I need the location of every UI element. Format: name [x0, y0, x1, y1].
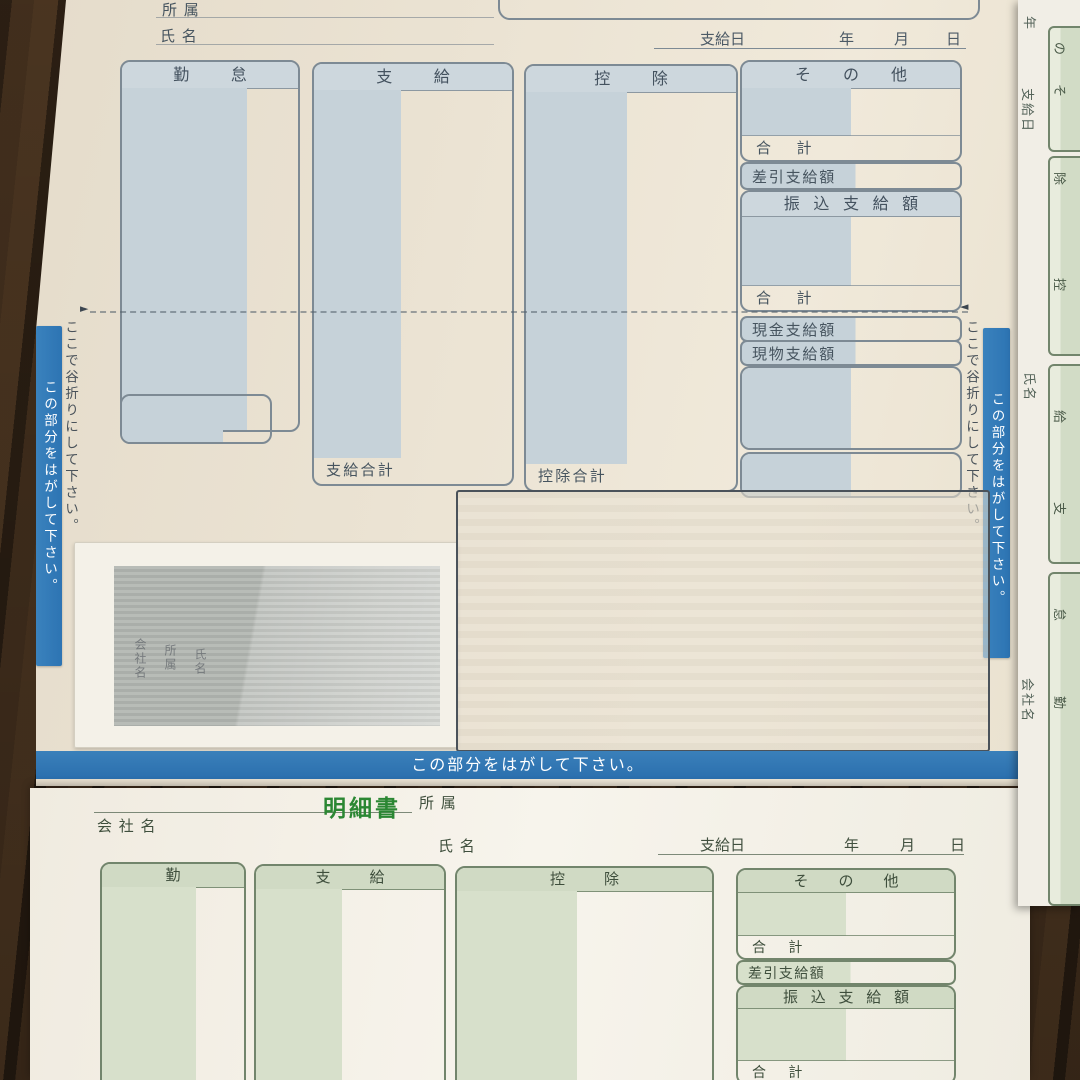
side-char-so: そ [1051, 84, 1070, 97]
deduction-body-bottom [457, 891, 712, 1080]
memo-box [456, 490, 990, 752]
pay-date-line-bottom: 支給日 年 月 日 [658, 832, 964, 855]
cash-payment-row: 現金支給額 [740, 316, 962, 342]
net-payment-row-bottom: 差引支給額 [736, 960, 956, 985]
pay-date-line: 支給日 年 月 日 [654, 26, 966, 49]
side-char-kyu: 給 [1051, 410, 1070, 423]
side-year-label: 年 [1021, 16, 1040, 31]
desk-photo-scene: 所属 氏名 支給日 年 月 日 勤怠 支給 支給合計 [0, 0, 1080, 1080]
deduction-total-label: 控除合計 [538, 465, 607, 486]
transfer-payment-header-bottom: 振込支給額 [738, 987, 954, 1009]
affiliation-label-bottom: 所属 [419, 792, 463, 813]
attendance-column-bottom: 勤怠 [100, 862, 246, 1080]
payment-body: 支給合計 [314, 90, 512, 484]
blank-box-large [740, 366, 962, 450]
attendance-shading-bottom [102, 887, 196, 1080]
inkind-payment-row: 現物支給額 [740, 340, 962, 366]
payslip-sheet-top: 所属 氏名 支給日 年 月 日 勤怠 支給 支給合計 [36, 0, 1020, 786]
other-box: その他 合計 [740, 60, 962, 162]
deduction-header-bottom: 控除 [457, 868, 712, 892]
deduction-body: 控除合計 [526, 92, 736, 490]
window-name-label: 氏名 [192, 648, 209, 676]
peel-strip-left: この部分をはがして下さい。 [36, 326, 62, 666]
attendance-sub-box [120, 394, 272, 444]
payment-item-shading [314, 90, 401, 458]
side-char-jo: 除 [1051, 172, 1070, 185]
pay-date-label: 支給日 [700, 28, 745, 49]
transfer-payment-header: 振込支給額 [742, 192, 960, 217]
statement-sheet-bottom: 会社名 明細書 所属 氏名 支給日 年 月 日 勤怠 支給 控除 [30, 788, 1030, 1080]
deduction-column-bottom: 控除 [455, 866, 714, 1080]
affiliation-write-line [156, 17, 494, 18]
deduction-header: 控除 [526, 66, 736, 93]
payment-column-bottom: 支給 [254, 864, 446, 1080]
attendance-item-shading [122, 88, 247, 430]
attendance-sub-shading [122, 396, 223, 442]
year-label-bottom: 年 [844, 834, 859, 855]
window-affiliation-label: 所属 [162, 644, 179, 672]
other-total-row-bottom: 合計 [738, 935, 954, 958]
rotated-duplicate-sheet: 年 支給日 氏名 会社名 の そ 除 控 給 支 怠 勤 [1018, 0, 1080, 906]
payment-column: 支給 支給合計 [312, 62, 514, 486]
transfer-shading-bottom [738, 1009, 846, 1061]
other-header: その他 [742, 62, 960, 89]
year-label: 年 [839, 28, 854, 49]
transfer-total-label-bottom: 合計 [738, 1065, 825, 1080]
payment-header: 支給 [314, 64, 512, 91]
side-column-deduction [1048, 156, 1080, 356]
cash-payment-label: 現金支給額 [742, 319, 836, 340]
day-label: 日 [946, 28, 961, 49]
transfer-total-row-bottom: 合計 [738, 1060, 954, 1080]
name-label-bottom: 氏名 [438, 835, 482, 856]
fold-arrow-left-icon: ► [80, 302, 88, 315]
deduction-column: 控除 控除合計 [524, 64, 738, 492]
peel-banner: この部分をはがして下さい。 [36, 751, 1020, 779]
attendance-body-bottom [102, 887, 244, 1080]
side-column-payment [1048, 364, 1080, 564]
inkind-payment-label: 現物支給額 [742, 343, 836, 364]
blank-box-large-shading [742, 368, 851, 448]
transfer-shading [742, 217, 851, 286]
day-label-bottom: 日 [950, 834, 965, 855]
window-company-label: 会社名 [132, 638, 149, 680]
deduction-item-shading [526, 92, 627, 464]
statement-title: 明細書 [323, 789, 401, 823]
other-body: 合計 [742, 88, 960, 160]
header-info-box [498, 0, 980, 20]
other-total-label: 合計 [742, 139, 837, 157]
attendance-header: 勤怠 [122, 62, 298, 89]
side-column-attendance [1048, 572, 1080, 906]
company-label: 会社名 [97, 815, 162, 836]
month-label: 月 [894, 28, 909, 49]
side-pay-date-label: 支給日 [1019, 88, 1038, 133]
attendance-header-bottom: 勤怠 [102, 864, 244, 888]
other-shading [742, 88, 851, 136]
fold-perforation-line [90, 311, 968, 313]
transfer-body-bottom: 合計 [738, 1009, 954, 1080]
payment-header-bottom: 支給 [256, 866, 444, 890]
side-char-tai: 怠 [1051, 608, 1070, 621]
net-payment-label-bottom: 差引支給額 [738, 963, 825, 983]
pay-date-label-bottom: 支給日 [700, 834, 745, 855]
transfer-payment-box: 振込支給額 合計 [740, 190, 962, 312]
name-label: 氏名 [160, 25, 204, 46]
other-total-label-bottom: 合計 [738, 940, 825, 956]
other-box-bottom: その他 合計 [736, 868, 956, 960]
address-window-glass: 会社名 所属 氏名 [114, 566, 440, 726]
side-company-label: 会社名 [1019, 678, 1038, 723]
deduction-shading-bottom [457, 891, 577, 1080]
net-payment-label: 差引支給額 [742, 166, 836, 187]
net-payment-row: 差引支給額 [740, 162, 962, 190]
payment-shading-bottom [256, 889, 342, 1080]
name-write-line [156, 44, 494, 45]
other-total-row: 合計 [742, 135, 960, 160]
transfer-total-row: 合計 [742, 285, 960, 310]
side-char-ko: 控 [1051, 278, 1070, 291]
side-char-shi: 支 [1051, 502, 1070, 515]
fold-arrow-right-icon: ◄ [960, 300, 968, 313]
side-char-kin: 勤 [1051, 696, 1070, 709]
peel-strip-left-text: この部分をはがして下さい。 [39, 380, 59, 595]
attendance-body [122, 88, 298, 430]
transfer-payment-box-bottom: 振込支給額 合計 [736, 985, 956, 1080]
side-name-label: 氏名 [1021, 372, 1040, 402]
payment-body-bottom [256, 889, 444, 1080]
side-char-no: の [1051, 42, 1070, 55]
month-label-bottom: 月 [900, 834, 915, 855]
payment-total-label: 支給合計 [326, 459, 395, 480]
transfer-total-label: 合計 [742, 289, 837, 307]
other-shading-bottom [738, 893, 846, 936]
transfer-payment-body: 合計 [742, 217, 960, 310]
other-header-bottom: その他 [738, 870, 954, 893]
attendance-column: 勤怠 [120, 60, 300, 432]
other-body-bottom: 合計 [738, 893, 954, 958]
address-window-panel: 会社名 所属 氏名 [74, 542, 458, 748]
